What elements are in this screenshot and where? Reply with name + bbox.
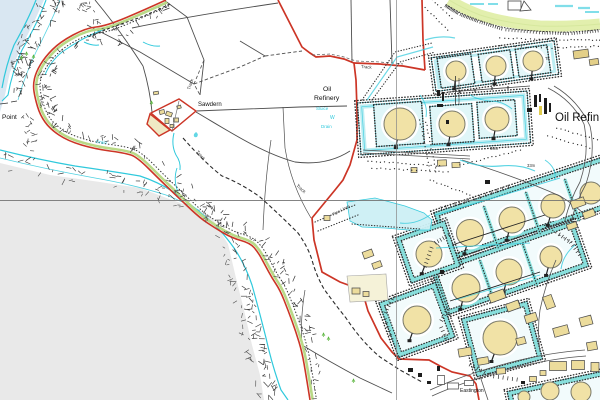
svg-text:Sawdern: Sawdern <box>198 102 222 108</box>
svg-text:Sluice: Sluice <box>316 106 329 111</box>
svg-text:Track: Track <box>361 64 373 70</box>
svg-text:Oil Refin: Oil Refin <box>555 112 599 124</box>
svg-text:36m: 36m <box>490 146 499 151</box>
svg-text:Drain: Drain <box>321 124 332 129</box>
svg-text:Eastington: Eastington <box>460 388 484 394</box>
svg-text:33m: 33m <box>527 163 536 168</box>
svg-text:Oil: Oil <box>323 86 332 93</box>
svg-text:W: W <box>330 115 335 121</box>
svg-text:Refinery: Refinery <box>314 95 340 102</box>
svg-text:Point: Point <box>2 114 17 121</box>
